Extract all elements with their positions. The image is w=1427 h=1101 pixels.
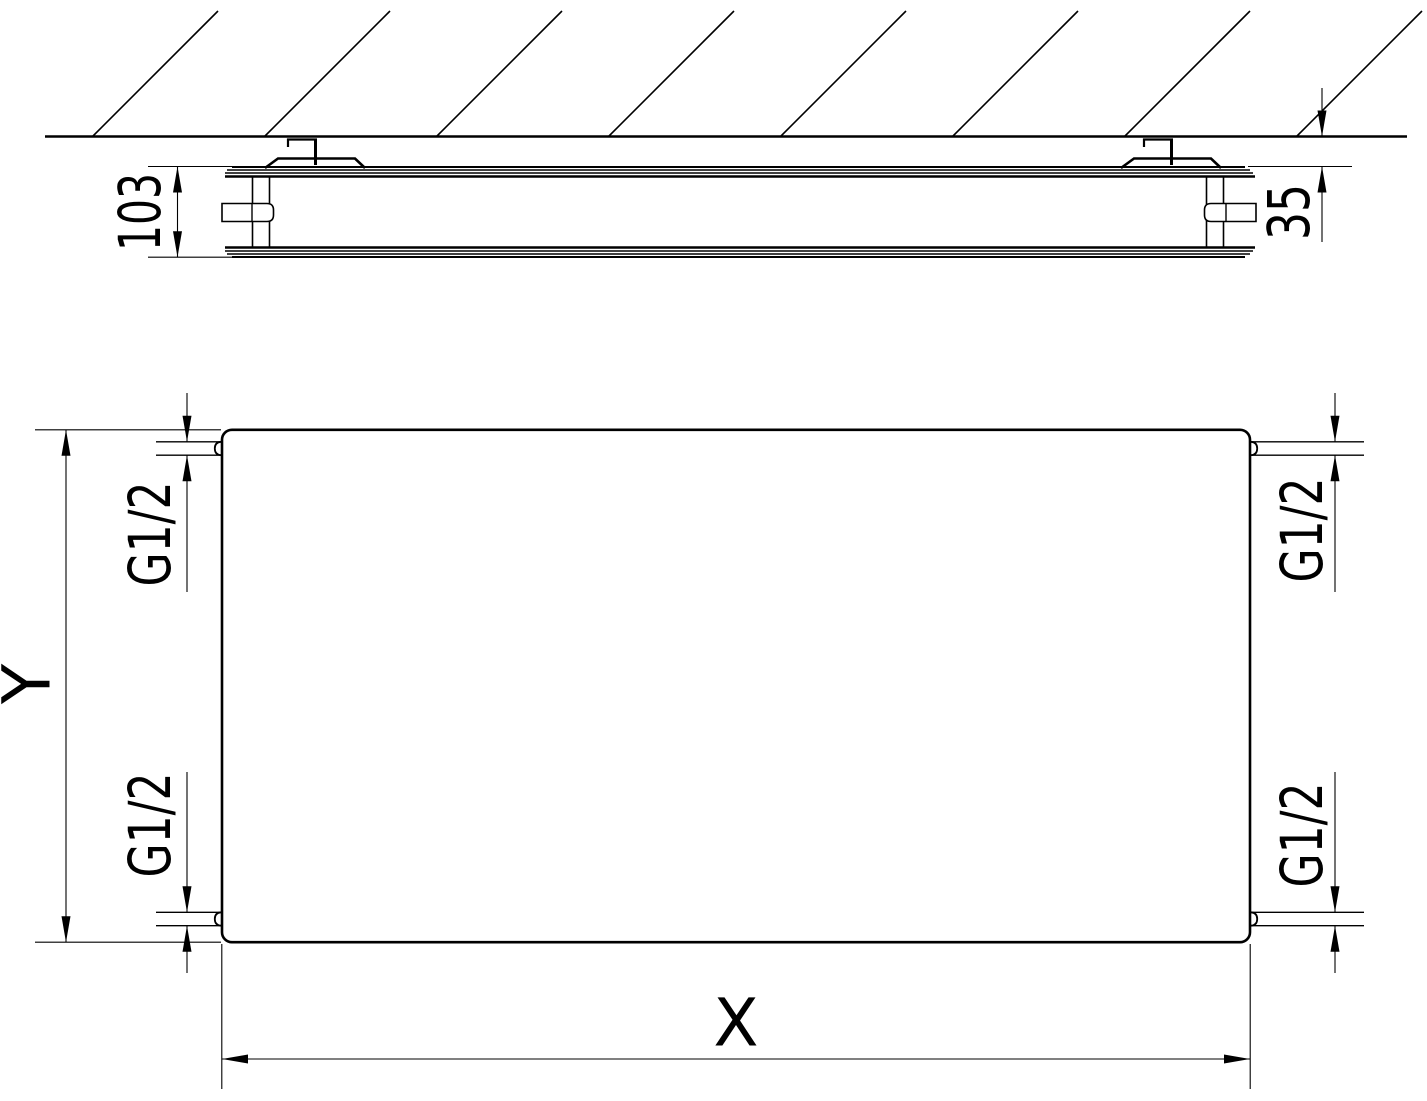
arrow-down-icon — [173, 231, 182, 257]
arrow-down-icon — [1331, 886, 1340, 912]
connection-label-top-right: G1/2 — [1268, 478, 1336, 583]
pipe-stub-bottom-left — [156, 912, 222, 925]
mounting-bracket-right — [1121, 140, 1221, 169]
dimension-height-y: Y — [0, 430, 221, 942]
arrow-up-icon — [62, 430, 71, 456]
valve-stub-right — [1205, 204, 1257, 222]
width-label: X — [713, 985, 758, 1062]
g12-dimension-top-left: G1/2 — [116, 393, 192, 592]
depth-dimension-label: 103 — [106, 173, 174, 251]
arrow-up-icon — [183, 926, 192, 952]
arrow-down-icon — [183, 886, 192, 912]
wall-hatch — [93, 11, 1422, 136]
pipe-stub-top-left — [156, 442, 222, 455]
radiator-front-panel — [222, 430, 1250, 942]
arrow-left-icon — [222, 1055, 248, 1064]
arrow-right-icon — [1224, 1055, 1250, 1064]
connection-label-top-left: G1/2 — [116, 482, 184, 587]
arrow-down-icon — [1318, 111, 1327, 137]
wall-distance-label: 35 — [1255, 184, 1323, 240]
arrow-down-icon — [183, 416, 192, 442]
mounting-bracket-left — [265, 140, 365, 169]
radiator-side-bottom-band — [225, 248, 1255, 258]
g12-dimension-top-right: G1/2 — [1268, 393, 1340, 592]
radiator-side-channels — [253, 177, 1224, 248]
connection-label-bottom-left: G1/2 — [116, 773, 184, 878]
radiator-side-top-band — [225, 167, 1255, 177]
arrow-up-icon — [183, 455, 192, 481]
arrow-up-icon — [1331, 926, 1340, 952]
g12-dimension-bottom-left: G1/2 — [116, 772, 192, 973]
arrow-down-icon — [1331, 416, 1340, 442]
g12-dimension-bottom-right: G1/2 — [1268, 772, 1340, 973]
arrow-up-icon — [1331, 455, 1340, 481]
radiator-dimension-diagram: 103 35 G1/2 — [0, 0, 1427, 1101]
height-label: Y — [0, 663, 66, 705]
dimension-width-x: X — [222, 944, 1250, 1089]
valve-stub-left — [222, 204, 274, 222]
pipe-stub-top-right — [1250, 442, 1364, 455]
connection-label-bottom-right: G1/2 — [1268, 783, 1336, 888]
drawing-sheet: 103 35 G1/2 — [0, 0, 1427, 1101]
dimension-wall-35: 35 — [1248, 88, 1352, 242]
arrow-up-icon — [173, 167, 182, 193]
pipe-stub-bottom-right — [1250, 912, 1364, 925]
arrow-down-icon — [62, 916, 71, 942]
